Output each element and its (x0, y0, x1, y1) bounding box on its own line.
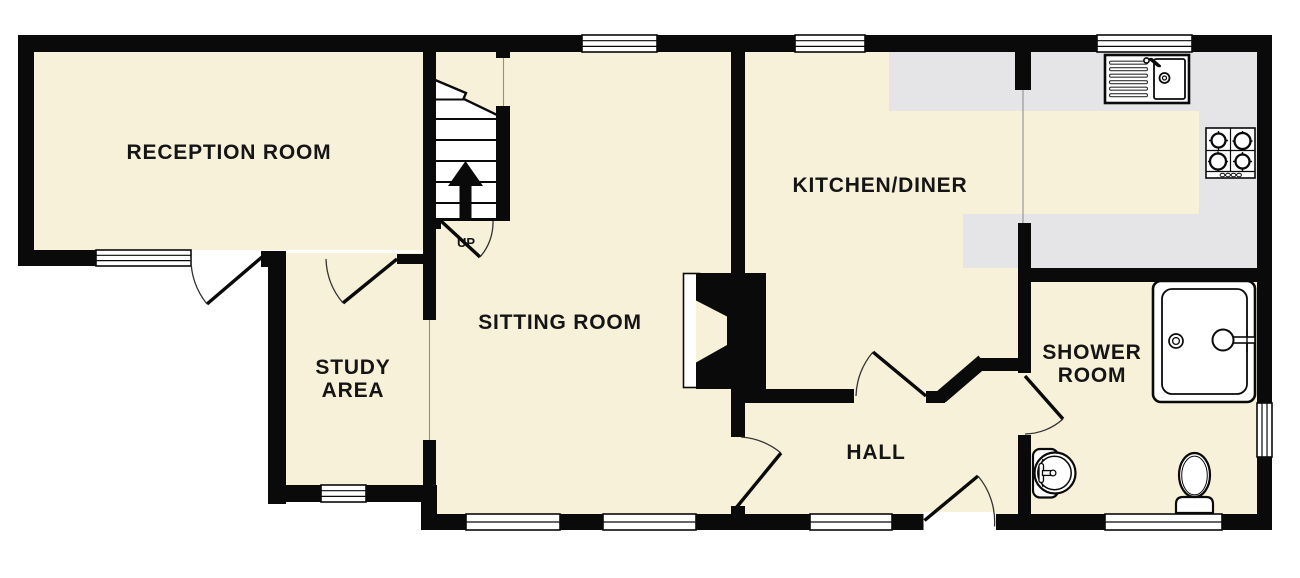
svg-text:ROOM: ROOM (1058, 364, 1127, 387)
svg-text:HALL: HALL (846, 441, 905, 464)
svg-text:SHOWER: SHOWER (1042, 341, 1141, 364)
svg-text:RECEPTION ROOM: RECEPTION ROOM (127, 141, 332, 164)
svg-text:SITTING ROOM: SITTING ROOM (478, 311, 642, 334)
svg-text:KITCHEN/DINER: KITCHEN/DINER (793, 174, 968, 197)
svg-text:STUDY: STUDY (315, 356, 390, 379)
svg-text:AREA: AREA (322, 379, 385, 402)
